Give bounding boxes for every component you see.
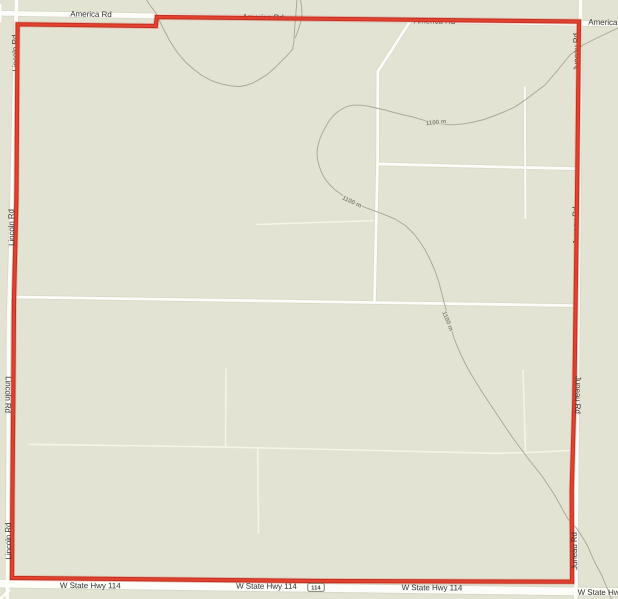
svg-text:Lincoln Rd: Lincoln Rd	[4, 523, 14, 560]
svg-text:America Rd: America Rd	[70, 9, 112, 19]
svg-text:W State Hwy 114: W State Hwy 114	[578, 588, 618, 597]
svg-text:America Rd: America Rd	[588, 18, 618, 28]
svg-text:W State Hwy 114: W State Hwy 114	[60, 581, 121, 590]
svg-text:Lincoln Rd: Lincoln Rd	[7, 209, 17, 246]
svg-text:Juneau Rd: Juneau Rd	[573, 376, 583, 414]
svg-text:Juneau Rd: Juneau Rd	[570, 532, 580, 570]
svg-text:W State Hwy 114: W State Hwy 114	[402, 583, 463, 592]
svg-text:W State Hwy 114: W State Hwy 114	[236, 582, 297, 591]
svg-text:114: 114	[311, 586, 321, 592]
svg-text:Lincoln Rd: Lincoln Rd	[3, 376, 13, 413]
